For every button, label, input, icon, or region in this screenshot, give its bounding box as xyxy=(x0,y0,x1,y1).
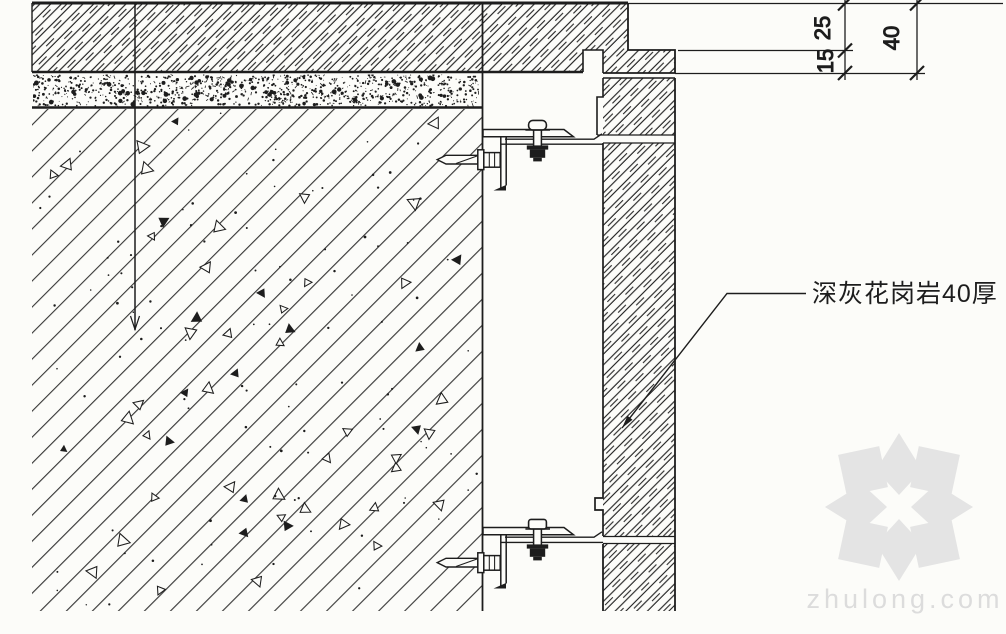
granite-label: 深灰花岗岩40厚 xyxy=(812,280,998,308)
dimension-value-15: 15 xyxy=(813,49,838,73)
dimension-value-25: 25 xyxy=(810,16,835,40)
concrete-wall xyxy=(32,109,483,611)
panel-joint-gap-bottom xyxy=(603,536,675,543)
watermark-text: zhulong.com xyxy=(806,584,1003,614)
bolt-head-icon xyxy=(529,519,547,529)
lock-nut-icon xyxy=(530,549,545,557)
panel-joint-gap-top xyxy=(603,135,675,142)
lock-nut-icon xyxy=(530,150,545,158)
washer-icon xyxy=(478,150,484,170)
hex-nut-icon xyxy=(484,153,500,168)
granite-panel xyxy=(595,78,675,611)
detail-drawing-svg: zhulong.com xyxy=(0,0,1006,634)
washer-icon xyxy=(478,553,484,573)
top-cladding-band xyxy=(32,3,675,73)
dimension-value-40: 40 xyxy=(879,26,904,50)
construction-detail-drawing: zhulong.com xyxy=(0,0,1006,634)
hex-nut-icon xyxy=(484,556,500,571)
bolt-head-icon xyxy=(529,120,547,130)
